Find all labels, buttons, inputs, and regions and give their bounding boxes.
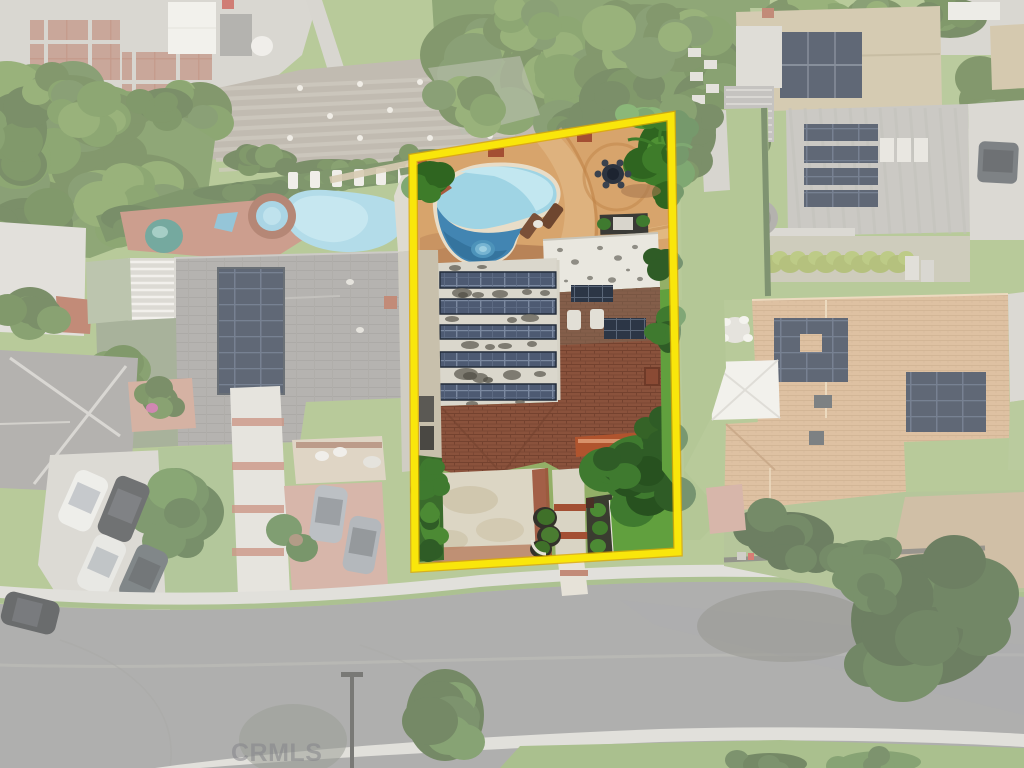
svg-text:CRMLS: CRMLS <box>231 739 322 767</box>
